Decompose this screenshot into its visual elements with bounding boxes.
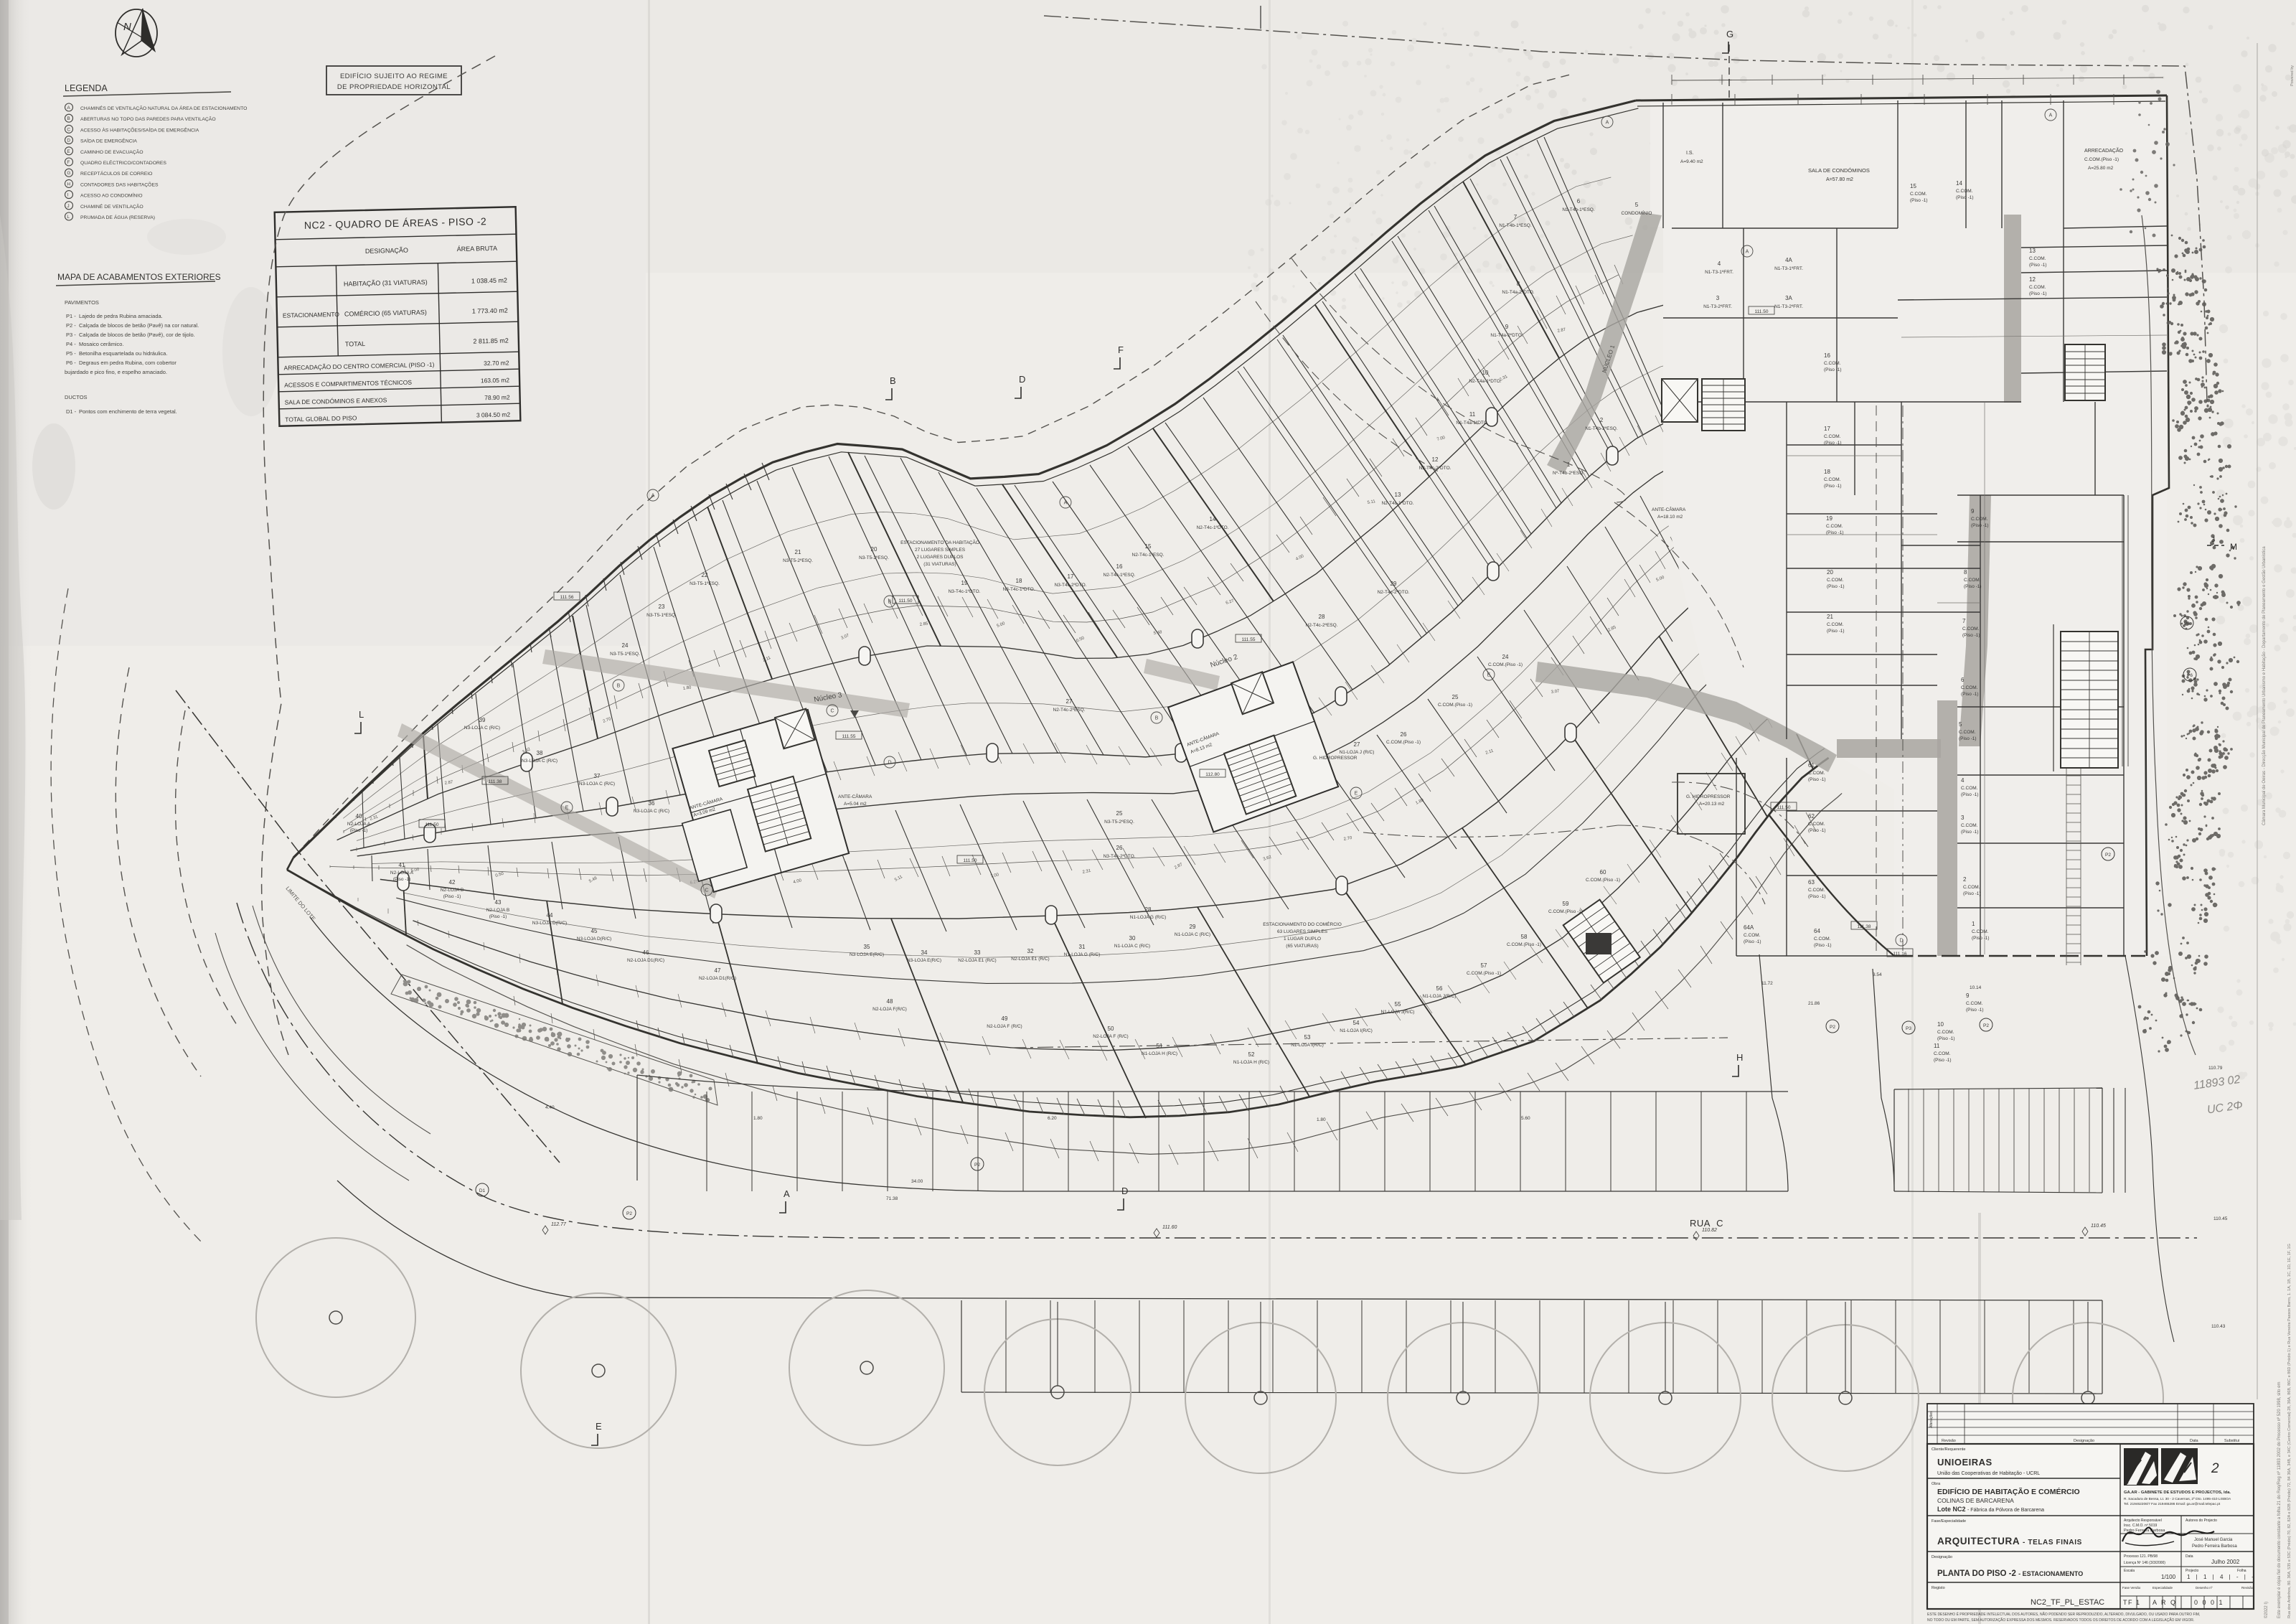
svg-text:NO TODO OU EM PARTE, SEM AUTOR: NO TODO OU EM PARTE, SEM AUTORIZAÇÃO EXP… [1927,1618,2194,1623]
svg-text:C.COM.: C.COM. [1959,730,1976,735]
svg-text:D: D [1899,939,1903,944]
svg-text:2: 2 [1963,876,1967,883]
svg-text:(Piso -1): (Piso -1) [1962,633,1980,638]
svg-text:(Piso -1): (Piso -1) [1963,891,1981,896]
svg-text:(Piso -1): (Piso -1) [393,877,411,882]
svg-text:20: 20 [871,546,878,553]
svg-text:27 LUGARES SIMPLES: 27 LUGARES SIMPLES [915,548,966,553]
svg-text:COLINAS DE BARCARENA: COLINAS DE BARCARENA [1937,1497,2014,1504]
svg-text:14: 14 [1210,516,1216,522]
svg-text:I: I [67,193,68,198]
svg-text:27: 27 [1354,741,1360,748]
svg-text:P2: P2 [626,1211,632,1216]
svg-text:N3-LOJA D(R/C): N3-LOJA D(R/C) [577,937,611,942]
svg-text:D: D [1121,1186,1128,1196]
svg-text:(Piso -1): (Piso -1) [1824,441,1842,446]
svg-text:N1-LOJA H (R/C): N1-LOJA H (R/C) [1142,1051,1177,1056]
svg-text:CONTADORES DAS HABITAÇÕES: CONTADORES DAS HABITAÇÕES [80,181,159,187]
svg-text:N2-T4c-1ºESQ.: N2-T4c-1ºESQ. [1132,553,1165,558]
svg-text:ESTACIONAMENTO: ESTACIONAMENTO [283,311,340,319]
svg-text:A=18.10 m2: A=18.10 m2 [1657,515,1683,520]
svg-text:N1-LOJA J (R/C): N1-LOJA J (R/C) [1340,750,1375,755]
svg-text:PRUMADA DE ÁGUA (RESERVA): PRUMADA DE ÁGUA (RESERVA) [80,214,155,220]
svg-text:7: 7 [1514,214,1518,220]
svg-text:N2-LOJA B: N2-LOJA B [486,908,510,913]
svg-text:54: 54 [1353,1020,1360,1026]
svg-text:G: G [1726,29,1733,39]
svg-text:61: 61 [1808,762,1815,769]
svg-text:21: 21 [795,549,801,555]
svg-text:Degraus em pedra Rubina, com c: Degraus em pedra Rubina, com cobertor [79,360,177,366]
svg-text:18: 18 [1016,578,1022,584]
svg-text:P2: P2 [2105,853,2111,858]
svg-text:C.COM.: C.COM. [1910,192,1927,197]
svg-text:TF 1: TF 1 [2123,1599,2141,1606]
svg-text:21.86: 21.86 [1808,1001,1820,1006]
svg-text:Calçada de blocos de betão (Pa: Calçada de blocos de betão (Pavê) na cor… [79,322,199,329]
svg-text:P2: P2 [1983,1023,1989,1028]
svg-text:11.72: 11.72 [1761,981,1773,986]
svg-text:C.COM.: C.COM. [1962,626,1980,632]
svg-text:F: F [1118,344,1124,355]
svg-text:C.COM.: C.COM. [1744,933,1761,938]
svg-text:Projecto: Projecto [2186,1569,2199,1573]
svg-text:C.COM.(Piso -1): C.COM.(Piso -1) [1507,942,1541,947]
svg-text:111.50: 111.50 [425,822,439,827]
svg-text:DESIGNAÇÃO: DESIGNAÇÃO [365,247,408,255]
svg-text:N1-LOJA G (R/C): N1-LOJA G (R/C) [1064,952,1101,957]
svg-text:C.COM.(Piso -1): C.COM.(Piso -1) [1467,971,1501,976]
svg-text:16: 16 [1116,563,1123,570]
svg-text:6: 6 [1961,677,1965,683]
svg-text:1 LUGAR DUPLO: 1 LUGAR DUPLO [1284,937,1321,942]
svg-text:N3-T5-1ºESQ.: N3-T5-1ºESQ. [646,613,677,618]
svg-text:QUADRO ELÉCTRICO/CONTADORES: QUADRO ELÉCTRICO/CONTADORES [80,159,166,166]
svg-text:110.45: 110.45 [2091,1224,2106,1229]
svg-text:N3-T4c-2ºDTO.: N3-T4c-2ºDTO. [1104,854,1136,859]
svg-text:P2 -: P2 - [66,322,76,329]
svg-text:0 0 0 1: 0 0 0 1 [2194,1599,2224,1606]
svg-text:ACESSO ÀS HABITAÇÕES/SAÍDA DE: ACESSO ÀS HABITAÇÕES/SAÍDA DE EMERGÊNCIA [80,126,199,133]
svg-text:N1-T3-2ºFRT.: N1-T3-2ºFRT. [1774,304,1803,309]
svg-text:3: 3 [1716,295,1720,301]
svg-text:Tel. 219462206/7 Fax 21946528: Tel. 219462206/7 Fax 219465286 Email: ga… [2124,1502,2221,1506]
svg-text:C.COM.: C.COM. [1824,477,1841,482]
svg-text:CAMINHO DE EVACUAÇÃO: CAMINHO DE EVACUAÇÃO [80,149,143,155]
svg-text:A: A [1064,501,1068,506]
svg-text:Substitui: Substitui [2224,1439,2239,1443]
svg-text:1.80: 1.80 [753,1116,763,1121]
svg-text:C.COM.: C.COM. [1937,1030,1954,1035]
svg-text:50: 50 [1108,1025,1114,1032]
svg-text:C.COM.: C.COM. [2029,285,2046,290]
svg-text:Escala: Escala [2124,1569,2135,1573]
svg-text:ANTE-CÂMARA: ANTE-CÂMARA [838,793,872,799]
svg-text:N1-LOJA C (R/C): N1-LOJA C (R/C) [1175,932,1210,937]
svg-text:N2-T4c-1ºDTO.: N2-T4c-1ºDTO. [1197,525,1229,530]
svg-text:41: 41 [399,862,405,868]
svg-text:Mosaico cerâmico.: Mosaico cerâmico. [79,341,124,347]
svg-text:B: B [888,600,892,605]
svg-text:PLANTA DO PISO -2 - ESTACIONAM: PLANTA DO PISO -2 - ESTACIONAMENTO [1937,1569,2083,1578]
svg-text:Nº-T4b-2ºESQ.: Nº-T4b-2ºESQ. [1553,471,1584,476]
svg-text:(Piso -1): (Piso -1) [1961,792,1979,797]
svg-text:Revisão: Revisão [1942,1439,1956,1443]
svg-text:111.56: 111.56 [560,595,574,600]
svg-text:C.COM.(Piso -1): C.COM.(Piso -1) [1488,662,1523,667]
svg-text:6.20: 6.20 [1048,1116,1057,1121]
svg-text:29: 29 [1190,924,1196,930]
svg-text:Pontos com enchimento de terra: Pontos com enchimento de terra vegetal. [79,408,177,415]
svg-text:EDIFÍCIO SUJEITO AO REGIME: EDIFÍCIO SUJEITO AO REGIME [340,72,448,80]
svg-text:N3-LOJA C (R/C): N3-LOJA C (R/C) [522,759,557,764]
svg-text:PAVIMENTOS: PAVIMENTOS [65,299,99,306]
svg-text:Pedro Ferreira Barbosa: Pedro Ferreira Barbosa [2192,1544,2237,1549]
svg-text:C.COM.: C.COM. [1827,622,1844,627]
svg-text:N1-T4b-1ºESQ.: N1-T4b-1ºESQ. [1499,223,1532,228]
svg-text:E: E [1355,792,1358,797]
svg-text:(Piso -1): (Piso -1) [1824,367,1842,372]
svg-text:10: 10 [1937,1021,1944,1028]
svg-text:A: A [67,105,70,111]
svg-text:3.54: 3.54 [1873,972,1882,977]
svg-text:(Piso -1): (Piso -1) [1824,484,1842,489]
svg-text:ÁREA BRUTA: ÁREA BRUTA [457,245,498,253]
svg-text:5: 5 [1635,202,1639,208]
svg-text:B: B [890,375,896,386]
svg-text:N3-LOJA E(R/C): N3-LOJA E(R/C) [850,952,884,957]
svg-text:N3-LOJA C (R/C): N3-LOJA C (R/C) [579,782,615,787]
svg-text:Fase Versão: Fase Versão [2122,1586,2141,1590]
svg-text:110.45: 110.45 [2213,1216,2228,1221]
svg-text:SAÍDA DE EMERGÊNCIA: SAÍDA DE EMERGÊNCIA [80,138,137,144]
svg-text:(Piso -1): (Piso -1) [1808,777,1826,782]
svg-text:C.COM.: C.COM. [1972,929,1989,934]
svg-text:ESTACIONAMENTO DA HABITAÇÃO: ESTACIONAMENTO DA HABITAÇÃO [900,539,979,545]
svg-text:N2-LOJA F(R/C): N2-LOJA F(R/C) [872,1007,907,1012]
svg-text:Insc. C.M.O. nº 5019: Insc. C.M.O. nº 5019 [2124,1524,2158,1528]
svg-text:71.38: 71.38 [886,1196,898,1201]
svg-text:A: A [2049,113,2053,118]
svg-text:N3-T5-2ºESQ.: N3-T5-2ºESQ. [783,558,813,563]
svg-text:A: A [1746,250,1749,255]
svg-text:N1-T3-1ºFRT.: N1-T3-1ºFRT. [1705,270,1733,275]
svg-text:ACESSO AO CONDOMÍNIO: ACESSO AO CONDOMÍNIO [80,192,142,199]
svg-text:P6: P6 [2184,621,2190,626]
svg-text:111.55: 111.55 [1242,637,1256,642]
svg-text:60: 60 [1600,869,1606,876]
svg-text:4: 4 [1961,777,1965,784]
svg-text:UNIOEIRAS: UNIOEIRAS [1937,1457,1992,1468]
svg-text:42: 42 [449,879,456,886]
svg-text:Lajedo de pedra Rubina amaciad: Lajedo de pedra Rubina amaciada. [79,313,163,319]
svg-text:34.00: 34.00 [911,1179,923,1184]
svg-text:4A: 4A [1785,257,1792,263]
svg-text:União das Cooperativas de Habi: União das Cooperativas de Habitação - UC… [1937,1471,2040,1476]
svg-text:26: 26 [1116,845,1123,851]
svg-text:2 811.85 m2: 2 811.85 m2 [473,337,509,344]
svg-text:(Piso -1): (Piso -1) [1827,584,1845,589]
svg-text:43: 43 [495,899,502,906]
svg-text:A R Q: A R Q [2152,1599,2177,1606]
svg-text:(Piso -1): (Piso -1) [443,894,461,899]
svg-text:J: J [67,204,69,209]
svg-text:25: 25 [1452,694,1459,700]
svg-text:A=57.80 m2: A=57.80 m2 [1826,177,1853,182]
svg-text:8: 8 [1964,569,1967,576]
svg-text:ANTE-CÂMARA: ANTE-CÂMARA [1652,506,1686,512]
svg-text:78.90 m2: 78.90 m2 [484,393,510,401]
svg-text:10.14: 10.14 [1970,985,1982,990]
svg-text:N3-LOJA D(R/C): N3-LOJA D(R/C) [532,921,567,926]
svg-text:1: 1 [1567,461,1571,468]
svg-text:32: 32 [1027,948,1034,954]
svg-text:SALA DE CONDÓMINOS: SALA DE CONDÓMINOS [1808,167,1870,174]
svg-text:G: G [67,171,70,176]
svg-text:33: 33 [974,949,981,956]
svg-text:E: E [565,806,569,811]
svg-text:RUA C: RUA C [1690,1218,1723,1229]
svg-text:15: 15 [1145,543,1152,550]
svg-text:G. HIDROPRESSOR: G. HIDROPRESSOR [1686,794,1731,799]
svg-text:©2022 I): ©2022 I) [2264,1602,2269,1618]
svg-text:I.S.: I.S. [1686,151,1694,156]
svg-text:11: 11 [1934,1043,1940,1049]
svg-text:A: A [784,1188,790,1199]
svg-text:B: B [1155,716,1159,721]
svg-text:C.COM.: C.COM. [1961,823,1978,828]
svg-text:Revisão: Revisão [2241,1586,2254,1590]
svg-text:C.COM.(Piso -1): C.COM.(Piso -1) [1438,703,1472,708]
svg-text:Designação: Designação [2074,1439,2094,1443]
svg-text:Desenho nº: Desenho nº [2196,1586,2213,1590]
svg-text:3: 3 [1961,815,1965,821]
svg-text:(Piso -1): (Piso -1) [2029,291,2047,296]
svg-text:N3-LOJA C (R/C): N3-LOJA C (R/C) [464,726,500,731]
svg-text:Powered by: Powered by [2290,65,2295,86]
svg-text:N1-T4b-1ºESQ.: N1-T4b-1ºESQ. [1562,207,1595,212]
svg-text:N3-LOJA E(R/C): N3-LOJA E(R/C) [907,958,941,963]
svg-text:39: 39 [479,717,486,723]
svg-text:6: 6 [1577,198,1581,205]
svg-text:3 084.50 m2: 3 084.50 m2 [476,410,511,418]
svg-text:3A: 3A [1785,295,1792,301]
svg-text:N2-T4c-2ºDTO.: N2-T4c-2ºDTO. [1378,590,1410,595]
svg-text:N3-T5-2ºESQ.: N3-T5-2ºESQ. [859,555,889,560]
svg-text:53: 53 [1304,1034,1311,1041]
svg-text:(Piso -1): (Piso -1) [1744,939,1761,944]
svg-text:C.COM.: C.COM. [1963,885,1980,890]
svg-text:A=25.80 m2: A=25.80 m2 [2088,166,2114,171]
svg-text:21: 21 [1827,614,1833,620]
svg-text:4.40: 4.40 [545,1105,555,1110]
svg-text:C.COM.: C.COM. [1827,578,1844,583]
svg-text:N2-T4c-2ºESQ.: N2-T4c-2ºESQ. [1053,708,1086,713]
svg-text:63: 63 [1808,879,1815,886]
svg-text:1.80: 1.80 [1317,1117,1326,1122]
svg-text:N3-T4c-1ºDTO.: N3-T4c-1ºDTO. [1003,587,1035,592]
svg-text:ESTE DESENHO É PROPRIEDADE INT: ESTE DESENHO É PROPRIEDADE INTELECTUAL D… [1927,1612,2200,1617]
svg-text:(Piso -1): (Piso -1) [1961,692,1979,697]
svg-text:N2-T4a-1ºDTO.: N2-T4a-1ºDTO. [1469,379,1501,384]
svg-text:N1-LOJA G (R/C): N1-LOJA G (R/C) [1130,915,1167,920]
svg-text:28: 28 [1319,614,1325,620]
svg-text:63 LUGARES SIMPLES: 63 LUGARES SIMPLES [1277,929,1328,934]
svg-text:52: 52 [1248,1051,1255,1058]
svg-text:59: 59 [1563,901,1569,907]
svg-text:E: E [1487,673,1491,678]
svg-text:N3-T4c-1ºDTO.: N3-T4c-1ºDTO. [949,589,981,594]
svg-text:A=5.04 m2: A=5.04 m2 [844,802,867,807]
svg-text:N1-T4b-2ºESQ.: N1-T4b-2ºESQ. [1585,426,1618,431]
svg-text:17: 17 [1824,426,1830,432]
svg-text:111.38: 111.38 [489,779,502,784]
svg-text:(Piso -1): (Piso -1) [1971,523,1989,528]
svg-text:Processo 121. PB/98: Processo 121. PB/98 [2124,1554,2158,1559]
svg-text:EDIFÍCIO DE HABITAÇÃO E COMÉRC: EDIFÍCIO DE HABITAÇÃO E COMÉRCIO [1937,1487,2080,1496]
svg-text:56: 56 [1436,985,1443,992]
svg-text:(Piso -1): (Piso -1) [1826,530,1844,535]
svg-text:E: E [596,1421,602,1432]
svg-text:111.50: 111.50 [1755,309,1769,314]
svg-text:N1-LOJA H (R/C): N1-LOJA H (R/C) [1233,1060,1269,1065]
svg-text:45: 45 [591,928,598,934]
svg-text:25: 25 [1116,810,1123,817]
svg-text:20: 20 [1827,569,1833,576]
svg-text:TOTAL: TOTAL [345,340,365,348]
svg-text:47: 47 [715,967,721,974]
svg-text:(Piso -1): (Piso -1) [1961,830,1979,835]
svg-text:110.82: 110.82 [1702,1228,1717,1233]
svg-text:48: 48 [887,998,893,1005]
svg-text:N3-T5-2ºESQ.: N3-T5-2ºESQ. [1104,820,1134,825]
svg-text:9: 9 [1505,324,1509,330]
svg-text:Julho 2002: Julho 2002 [2211,1559,2240,1565]
svg-text:C.COM.: C.COM. [1961,786,1978,791]
svg-text:Rua dos Antinhos, 80. 36A, 535: Rua dos Antinhos, 80. 36A, 535 e 53C (Pr… [2287,1244,2292,1618]
svg-text:163.05 m2: 163.05 m2 [481,376,510,384]
svg-text:C: C [830,709,834,714]
svg-text:N3-T5-1ºESQ.: N3-T5-1ºESQ. [690,581,720,586]
svg-text:23: 23 [659,604,665,610]
svg-text:55: 55 [1395,1001,1401,1008]
svg-text:N3-LOJA C (R/C): N3-LOJA C (R/C) [634,809,669,814]
svg-text:(Piso -1): (Piso -1) [1808,894,1826,899]
svg-text:(Piso -1): (Piso -1) [1956,195,1974,200]
svg-text:18: 18 [1824,469,1830,475]
svg-text:Autores do Projecto: Autores do Projecto [2186,1519,2217,1523]
svg-text:N2-LOJA D1(R/C): N2-LOJA D1(R/C) [627,958,664,963]
svg-text:(65 VIATURAS): (65 VIATURAS) [1286,944,1318,949]
svg-text:C.COM.: C.COM. [1956,189,1973,194]
svg-text:N2-T4c-1ºDTO.: N2-T4c-1ºDTO. [1382,501,1414,506]
svg-text:37: 37 [594,773,601,779]
svg-text:36: 36 [649,800,655,807]
svg-text:GA.AR - GABINETE DE ESTUDOS E: GA.AR - GABINETE DE ESTUDOS E PROJECTOS,… [2124,1491,2231,1495]
svg-text:1/100: 1/100 [2161,1574,2176,1580]
svg-text:14: 14 [1956,180,1962,187]
svg-text:(Piso -1): (Piso -1) [1966,1008,1984,1013]
svg-text:30: 30 [1129,935,1136,942]
svg-text:10: 10 [1482,370,1489,376]
svg-text:12: 12 [2029,276,2036,283]
svg-text:58: 58 [1521,934,1528,940]
svg-text:Licença Nº 146 (3/3/2000): Licença Nº 146 (3/3/2000) [2124,1561,2165,1565]
svg-text:P2: P2 [974,1163,980,1168]
svg-text:111.16: 111.16 [1893,952,1907,957]
svg-text:C.COM.(Piso -1): C.COM.(Piso -1) [2084,157,2119,162]
svg-text:19: 19 [961,580,968,586]
svg-text:(Piso -1): (Piso -1) [1910,198,1928,203]
svg-text:Alterações: Alterações [1929,1411,1934,1428]
svg-text:44: 44 [547,912,553,919]
svg-text:Registo: Registo [1932,1586,1945,1590]
svg-text:8: 8 [1517,281,1520,287]
svg-text:C.COM.(Piso -1): C.COM.(Piso -1) [1586,878,1620,883]
svg-text:40: 40 [356,813,362,820]
svg-text:C: C [705,888,708,893]
svg-text:P3: P3 [1906,1026,1911,1031]
svg-text:13: 13 [1395,492,1401,498]
svg-text:112.80: 112.80 [1205,772,1220,777]
svg-text:(Piso -1): (Piso -1) [2029,263,2047,268]
svg-text:CHAMINÉ DE VENTILAÇÃO: CHAMINÉ DE VENTILAÇÃO [80,203,143,210]
svg-text:P5 -: P5 - [66,350,76,357]
svg-text:(Piso -1): (Piso -1) [1934,1058,1952,1063]
svg-text:N3-T5-1ºESQ.: N3-T5-1ºESQ. [610,652,640,657]
svg-text:C.COM.: C.COM. [1808,822,1825,827]
svg-text:J: J [2211,536,2215,544]
svg-text:H: H [1736,1052,1743,1063]
svg-text:D1 -: D1 - [66,408,77,415]
svg-text:Este exemplar é cópia fiel do: Este exemplar é cópia fiel do documento … [2277,1382,2282,1619]
svg-text:P4 -: P4 - [66,341,76,347]
svg-text:64A: 64A [1744,924,1754,931]
svg-text:(Piso -1): (Piso -1) [1972,936,1990,941]
svg-text:13: 13 [2029,248,2036,254]
svg-text:1 038.45 m2: 1 038.45 m2 [471,277,507,285]
svg-text:11: 11 [1469,411,1476,418]
svg-text:1 | 1 | 4 | - | -: 1 | 1 | 4 | - | - [2187,1574,2256,1580]
svg-text:112.77: 112.77 [551,1222,567,1227]
svg-text:Folha: Folha [2237,1569,2246,1573]
svg-text:Especialidade: Especialidade [2152,1586,2173,1590]
svg-text:Betonilha esquartelada ou hidr: Betonilha esquartelada ou hidráulica. [79,350,167,357]
svg-text:D1: D1 [479,1188,486,1193]
svg-text:(Piso -1): (Piso -1) [489,914,507,919]
svg-text:46: 46 [643,949,649,956]
svg-text:P6: P6 [2187,673,2193,678]
svg-text:C.COM.: C.COM. [1964,578,1981,583]
svg-text:H: H [67,182,70,187]
svg-text:1 773.40 m2: 1 773.40 m2 [472,307,508,315]
svg-text:38: 38 [537,750,543,756]
svg-text:ARRECADAÇÃO: ARRECADAÇÃO [2084,147,2124,154]
svg-text:C.COM.(Piso -1): C.COM.(Piso -1) [1548,909,1583,914]
svg-text:N2-LOJA D1(R/C): N2-LOJA D1(R/C) [699,976,736,981]
svg-text:(Piso -1): (Piso -1) [1959,736,1977,741]
svg-text:P6 -: P6 - [66,360,76,366]
svg-text:C.COM.: C.COM. [1966,1001,1983,1006]
svg-text:bujardado e pico fino, e espel: bujardado e pico fino, e espelho amaciad… [65,369,167,375]
svg-text:(Piso -1): (Piso -1) [1964,584,1982,589]
svg-text:111.60: 111.60 [1162,1225,1177,1230]
svg-text:LEGENDA: LEGENDA [65,83,108,93]
svg-text:N2-LOJA F (R/C): N2-LOJA F (R/C) [987,1024,1022,1029]
svg-text:2: 2 [2211,1461,2219,1476]
svg-text:24: 24 [622,642,629,649]
svg-text:Designação: Designação [1932,1555,1952,1559]
